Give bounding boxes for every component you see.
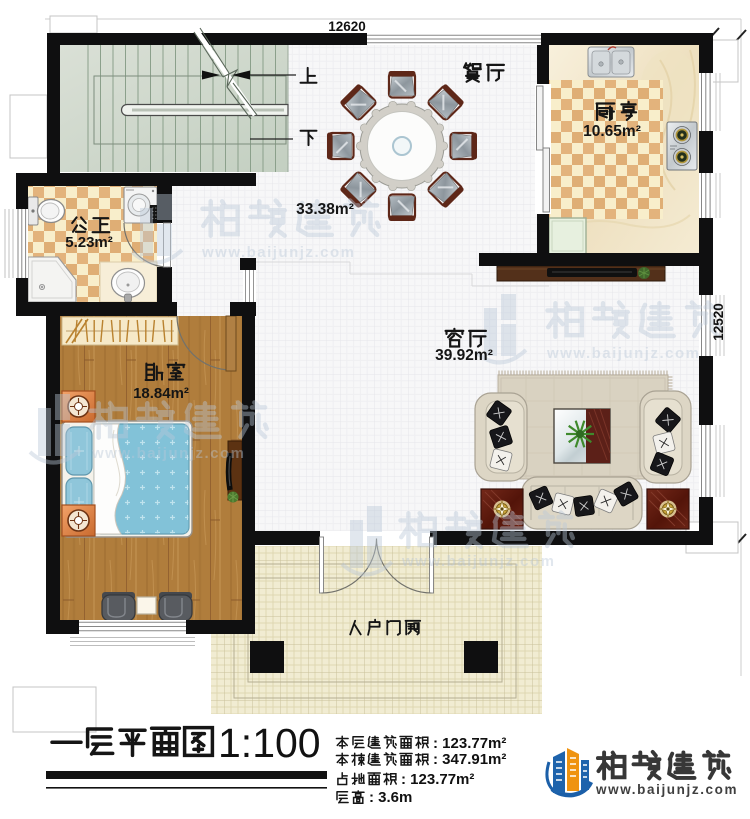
svg-text:12620: 12620	[328, 19, 366, 34]
svg-text:5.23m²: 5.23m²	[65, 234, 113, 251]
svg-text:18.84m²: 18.84m²	[133, 385, 189, 402]
svg-text:10.65m²: 10.65m²	[583, 123, 641, 140]
svg-text:1:100: 1:100	[218, 720, 321, 766]
svg-text:: 123.77m²: : 123.77m²	[401, 771, 474, 788]
svg-text:33.38m²: 33.38m²	[296, 201, 354, 218]
svg-text:39.92m²: 39.92m²	[435, 347, 493, 364]
svg-text:www.baijunjz.com: www.baijunjz.com	[401, 553, 555, 570]
svg-text:: 347.91m²: : 347.91m²	[433, 751, 506, 768]
svg-text:www.baijunjz.com: www.baijunjz.com	[595, 782, 738, 797]
svg-text:www.baijunjz.com: www.baijunjz.com	[201, 244, 355, 261]
svg-text:12520: 12520	[711, 303, 726, 341]
svg-text:www.baijunjz.com: www.baijunjz.com	[91, 445, 245, 462]
svg-text:: 3.6m: : 3.6m	[369, 789, 412, 806]
svg-text:: 123.77m²: : 123.77m²	[433, 735, 506, 752]
svg-text:www.baijunjz.com: www.baijunjz.com	[546, 345, 700, 362]
